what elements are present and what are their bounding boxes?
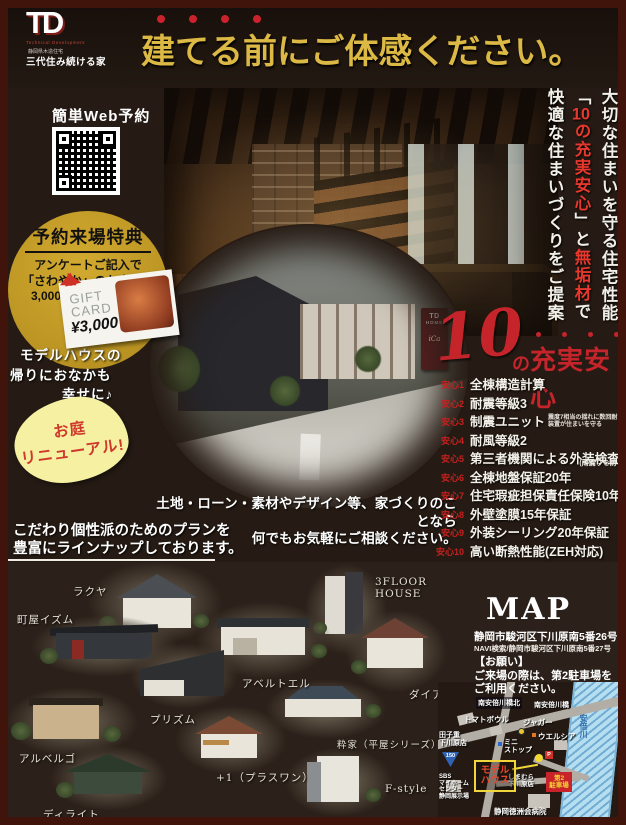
route-150-shield-icon: 150 bbox=[442, 752, 459, 767]
plans-copy: こだわり個性派のためのプランを 豊富にラインナップしております。 bbox=[13, 522, 243, 558]
qr-finder-icon bbox=[56, 175, 72, 191]
house-body bbox=[317, 756, 359, 802]
house-wall bbox=[144, 680, 184, 696]
house-roof bbox=[64, 754, 152, 772]
accent-dot-icon bbox=[614, 332, 619, 337]
anshin-item-note: (雨漏りを防ぐ) bbox=[579, 458, 626, 468]
accent-dot-icon bbox=[588, 332, 593, 337]
garage-door bbox=[233, 638, 257, 655]
map-label-river: 安倍川 bbox=[578, 714, 589, 738]
flyer-page: TD Technical Development 静岡県木造住宅 三代住み続ける… bbox=[0, 0, 626, 825]
house-name: 粋家（平屋シリーズ） bbox=[337, 737, 442, 751]
access-map: 南安倍川橋北 南安倍川橋 トマトボウル ジャガー ウエルシア 田子重下川原店 ミ… bbox=[438, 682, 626, 825]
plans-line-2: 豊富にラインナップしております。 bbox=[13, 540, 243, 558]
anshin-item: 安心8外壁塗膜15年保証 bbox=[436, 504, 571, 524]
benefit-title: 予約来場特典 bbox=[8, 224, 168, 249]
food-photo bbox=[115, 275, 175, 333]
bush bbox=[40, 648, 58, 664]
accent-dot-icon bbox=[562, 332, 567, 337]
bush bbox=[365, 704, 381, 718]
garden-renewal-bubble: お庭 リニューアル! bbox=[9, 390, 134, 489]
brand-tagline: 三代住み続ける家 bbox=[26, 54, 106, 68]
anshin-item: 安心7住宅瑕疵担保責任保険10年 bbox=[436, 485, 621, 505]
qr-finder-icon bbox=[100, 131, 116, 147]
house-body bbox=[56, 633, 152, 659]
bush bbox=[365, 788, 381, 802]
accent-dot-icon bbox=[536, 332, 541, 337]
map-label-sbs: SBSマイホームセンター静岡展示場 bbox=[439, 774, 469, 800]
map-label-hospital: 静岡徳洲会病院 bbox=[494, 806, 547, 817]
house-roof bbox=[195, 716, 263, 734]
anshin-item: 安心2耐震等級3 bbox=[436, 393, 527, 413]
house-roof bbox=[117, 574, 197, 598]
map-notice: 【お願い】 ご来場の際は、第2駐車場を ご利用ください。 bbox=[474, 656, 612, 697]
map-label-ministop: ミニストップ bbox=[504, 739, 532, 755]
map-label-bridge: 南安倍川橋 bbox=[534, 700, 569, 710]
bush bbox=[56, 782, 74, 798]
bush bbox=[11, 722, 31, 740]
top-banner: TD Technical Development 静岡県木造住宅 三代住み続ける… bbox=[0, 0, 626, 88]
balcony bbox=[203, 740, 229, 745]
ribbon-bow-icon bbox=[51, 268, 90, 296]
map-notice-line-1: ご来場の際は、第2駐車場を bbox=[474, 670, 612, 684]
map-label-tomato-bowl: トマトボウル bbox=[464, 714, 509, 725]
map-navi-address: NAVI検索/静岡市駿河区下川原南5番27号 bbox=[474, 643, 611, 654]
parking-p-icon: P bbox=[545, 751, 553, 759]
happy-line-1: モデルハウスの bbox=[20, 346, 140, 366]
td-logo: TD bbox=[26, 8, 61, 38]
house-model-diary bbox=[343, 608, 449, 694]
house-name: ディライト bbox=[43, 807, 100, 822]
happy-note: モデルハウスの 帰りにおなかも 幸せに♪ bbox=[10, 346, 140, 405]
ministop-icon bbox=[498, 742, 502, 746]
map-notice-line-2: ご利用ください。 bbox=[474, 683, 612, 697]
traffic-signal-icon bbox=[518, 728, 525, 735]
bush bbox=[351, 660, 367, 674]
welcia-icon bbox=[532, 733, 536, 737]
main-title: 建てる前にご体感ください。 bbox=[141, 24, 582, 73]
bush bbox=[103, 726, 121, 742]
house-name: F-style bbox=[385, 783, 427, 795]
house-name: +1（プラスワン） bbox=[216, 770, 314, 785]
house-door bbox=[72, 640, 84, 659]
map-title: MAP bbox=[486, 592, 571, 627]
house-name: 町屋イズム bbox=[17, 612, 74, 627]
house-model-prism bbox=[128, 642, 240, 710]
benefit-underline bbox=[25, 251, 151, 253]
map-notice-title: 【お願い】 bbox=[474, 656, 612, 670]
map-label-jaguar: ジャガー bbox=[523, 717, 553, 728]
map-address: 静岡市駿河区下川原南5番26号 bbox=[474, 629, 618, 644]
accent-dot-icon bbox=[157, 15, 165, 23]
bush bbox=[311, 644, 327, 658]
td-logo-subtitle: Technical Development bbox=[26, 40, 85, 45]
house-name: プリズム bbox=[150, 712, 196, 727]
gift-card: GIFTCARD ¥3,000 bbox=[58, 269, 179, 348]
house-body bbox=[367, 638, 423, 668]
anshin-no: の bbox=[512, 350, 530, 376]
map-parking2-box: 第2駐車場 bbox=[546, 772, 572, 792]
web-reserve-label: 簡単Web予約 bbox=[52, 105, 150, 126]
map-label-tagoju: 田子重下川原店 bbox=[439, 732, 467, 748]
house-body bbox=[33, 705, 99, 739]
map-label-welcia: ウエルシア bbox=[538, 731, 576, 742]
qr-code-icon bbox=[52, 127, 120, 195]
plans-line-1: こだわり個性派のためのプランを bbox=[13, 522, 243, 540]
house-name: 3FLOOR HOUSE bbox=[375, 576, 427, 600]
map-model-house-box: モデルハウス bbox=[474, 760, 516, 792]
map-label-bridge-north: 南安倍川橋北 bbox=[476, 697, 522, 709]
house-body bbox=[74, 772, 142, 794]
house-name: ラクヤ bbox=[73, 584, 108, 599]
anshin-item: 安心9外装シーリング20年保証 bbox=[436, 522, 609, 542]
qr-finder-icon bbox=[56, 131, 72, 147]
anshin-item: 安心4耐風等級2 bbox=[436, 430, 527, 450]
plans-underline bbox=[0, 559, 215, 561]
house-name: アルベルゴ bbox=[19, 751, 76, 766]
accent-dot-icon bbox=[189, 15, 197, 23]
accent-dot-icon bbox=[253, 15, 261, 23]
anshin-item: 安心6全棟地盤保証20年 bbox=[436, 467, 571, 487]
anshin-item: 安心3制震ユニット震度7相当の揺れに数回耐えた装置が住まいを守る bbox=[436, 411, 626, 431]
accent-dot-icon bbox=[221, 15, 229, 23]
house-body bbox=[201, 734, 257, 758]
anshin-item: 安心1全棟構造計算 bbox=[436, 374, 545, 394]
model-house-location-dot bbox=[535, 754, 543, 762]
ten-anshin-section: 10 の 充実安心 安心1全棟構造計算 安心2耐震等級3 安心3制震ユニット震度… bbox=[420, 300, 626, 576]
anshin-item: 安心10高い断熱性能(ZEH対応) bbox=[436, 541, 603, 561]
benefit-line-1: アンケートご記入で bbox=[8, 258, 168, 274]
anshin-item-note: 震度7相当の揺れに数回耐えた装置が住まいを守る bbox=[548, 415, 626, 428]
house-roof bbox=[361, 618, 429, 638]
house-name: アベルトエル bbox=[242, 676, 311, 691]
happy-line-2: 帰りにおなかも bbox=[10, 366, 140, 386]
house-body bbox=[285, 699, 361, 717]
